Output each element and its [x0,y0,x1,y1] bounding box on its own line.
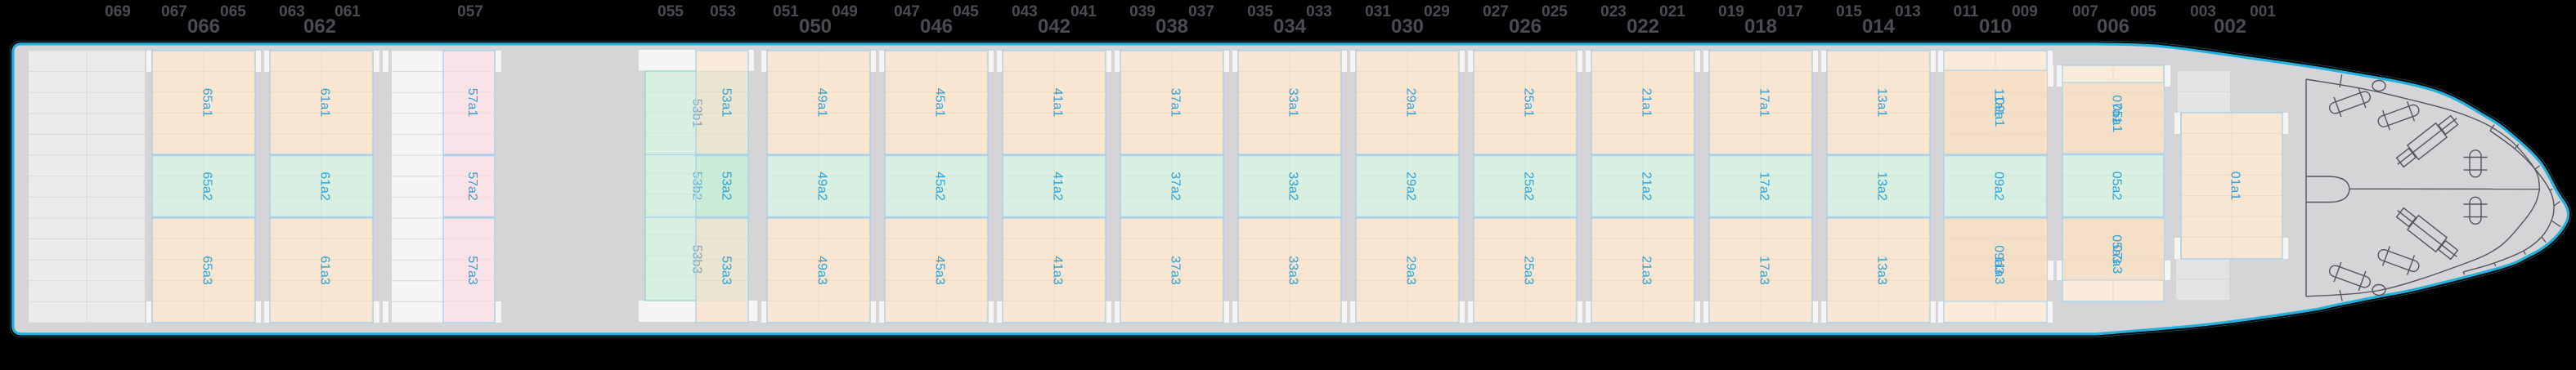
svg-text:45a3: 45a3 [933,256,947,285]
svg-text:25a3: 25a3 [1522,256,1536,285]
svg-text:050: 050 [799,16,832,38]
svg-text:015: 015 [1836,3,1862,20]
svg-text:61a2: 61a2 [318,172,332,201]
svg-text:001: 001 [2250,3,2276,20]
svg-text:07a3: 07a3 [2110,245,2124,274]
svg-text:047: 047 [894,3,920,20]
svg-text:009: 009 [2012,3,2038,20]
svg-text:069: 069 [105,3,131,20]
svg-text:027: 027 [1483,3,1509,20]
svg-text:065: 065 [220,3,246,20]
svg-text:49a3: 49a3 [815,256,829,285]
svg-text:49a1: 49a1 [815,88,829,118]
svg-text:57a3: 57a3 [465,256,479,285]
svg-text:25a2: 25a2 [1522,172,1536,201]
svg-text:17a2: 17a2 [1757,172,1771,201]
svg-text:006: 006 [2097,16,2129,38]
svg-text:014: 014 [1862,16,1896,38]
svg-text:066: 066 [187,16,220,38]
svg-text:007: 007 [2072,3,2098,20]
svg-text:030: 030 [1391,16,1424,38]
svg-text:055: 055 [657,3,684,20]
svg-text:013: 013 [1895,3,1921,20]
svg-text:037: 037 [1188,3,1214,20]
svg-text:005: 005 [2130,3,2156,20]
svg-text:067: 067 [161,3,187,20]
svg-text:17a3: 17a3 [1757,256,1771,285]
svg-text:038: 038 [1156,16,1188,38]
svg-text:33a3: 33a3 [1286,256,1300,285]
svg-text:019: 019 [1718,3,1744,20]
svg-text:29a3: 29a3 [1404,256,1418,285]
svg-text:13a1: 13a1 [1875,88,1889,118]
svg-text:21a2: 21a2 [1640,172,1654,201]
svg-text:45a2: 45a2 [933,172,947,201]
svg-text:41a1: 41a1 [1051,88,1065,118]
svg-text:29a1: 29a1 [1404,88,1418,118]
svg-text:37a1: 37a1 [1169,88,1183,118]
svg-text:022: 022 [1627,16,1659,38]
svg-text:033: 033 [1306,3,1332,20]
svg-text:21a3: 21a3 [1640,256,1654,285]
svg-text:53a2: 53a2 [720,172,734,201]
svg-text:21a1: 21a1 [1640,88,1654,118]
svg-text:01a1: 01a1 [2228,172,2242,201]
svg-text:33a1: 33a1 [1286,88,1300,118]
svg-text:37a3: 37a3 [1169,256,1183,285]
svg-text:034: 034 [1273,16,1307,38]
svg-text:13a2: 13a2 [1875,172,1889,201]
svg-text:05a1: 05a1 [2110,104,2124,133]
svg-text:33a2: 33a2 [1286,172,1300,201]
svg-text:049: 049 [832,3,858,20]
svg-text:13a3: 13a3 [1875,256,1889,285]
svg-text:053: 053 [710,3,736,20]
svg-text:41a3: 41a3 [1051,256,1065,285]
svg-text:031: 031 [1365,3,1391,20]
svg-text:011: 011 [1954,3,1979,20]
svg-text:035: 035 [1247,3,1273,20]
svg-text:65a2: 65a2 [200,172,214,201]
svg-text:051: 051 [773,3,799,20]
svg-text:09a2: 09a2 [1992,172,2006,201]
svg-text:29a2: 29a2 [1404,172,1418,201]
svg-text:045: 045 [953,3,979,20]
svg-text:010: 010 [1979,16,2012,38]
svg-text:003: 003 [2190,3,2216,20]
svg-text:45a1: 45a1 [933,88,947,118]
svg-text:041: 041 [1070,3,1097,20]
svg-text:37a2: 37a2 [1169,172,1183,201]
svg-text:026: 026 [1509,16,1542,38]
svg-text:002: 002 [2214,16,2246,38]
svg-text:05a2: 05a2 [2110,172,2124,201]
svg-text:046: 046 [920,16,953,38]
svg-text:53a3: 53a3 [720,256,734,285]
svg-text:65a3: 65a3 [200,256,214,285]
svg-text:023: 023 [1600,3,1627,20]
svg-text:49a2: 49a2 [815,172,829,201]
svg-text:57a1: 57a1 [465,88,479,118]
svg-text:61a1: 61a1 [318,88,332,118]
svg-text:61a3: 61a3 [318,256,332,285]
svg-text:41a2: 41a2 [1051,172,1065,201]
svg-text:017: 017 [1777,3,1803,20]
svg-text:063: 063 [279,3,305,20]
svg-text:11a3: 11a3 [1992,256,2006,285]
svg-text:021: 021 [1659,3,1685,20]
svg-text:65a1: 65a1 [200,88,214,118]
svg-text:042: 042 [1038,16,1070,38]
svg-text:029: 029 [1424,3,1450,20]
svg-text:53a1: 53a1 [720,88,734,118]
svg-text:062: 062 [303,16,336,38]
svg-text:25a1: 25a1 [1522,88,1536,118]
svg-text:09a1: 09a1 [1992,98,2006,127]
svg-text:043: 043 [1012,3,1038,20]
svg-text:018: 018 [1744,16,1777,38]
svg-text:057: 057 [457,3,483,20]
svg-text:57a2: 57a2 [465,172,479,201]
svg-text:53b2: 53b2 [690,172,704,201]
svg-text:17a1: 17a1 [1757,88,1771,118]
svg-text:039: 039 [1129,3,1156,20]
svg-text:025: 025 [1542,3,1568,20]
svg-text:061: 061 [334,3,361,20]
